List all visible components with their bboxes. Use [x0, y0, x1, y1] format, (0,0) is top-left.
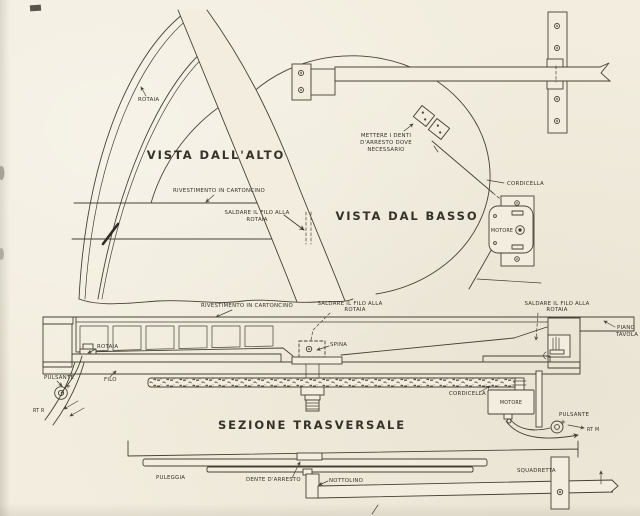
button-left-assembly [45, 356, 84, 425]
leader-mettere [404, 124, 413, 131]
label-dente-arresto: DENTE D'ARRESTO [246, 477, 301, 483]
label-mettere-line3: NECESSARIO [367, 147, 404, 153]
label-rt-m: RT M [587, 427, 599, 433]
label-nottolino: NOTTOLINO [329, 478, 363, 484]
label-rivestimento-top: RIVESTIMENTO IN CARTONCINO [173, 188, 265, 194]
pit-wall-left [43, 324, 72, 367]
step-strip-right [483, 356, 550, 362]
motor-bottom-view: MOTORE [489, 196, 534, 266]
rail-arc-outer [98, 48, 206, 299]
stop-tooth-tab [297, 453, 322, 460]
label-saldare-center-line2: ROTAIA [344, 307, 365, 313]
top-view-figure: ROTAIA RIVESTIMENTO IN CARTONCINO SALDAR… [72, 10, 353, 304]
technical-drawing-page: MOTORE METTERE I DENTI D'ARRESTO DOVE NE… [0, 0, 640, 516]
leader-rivestimento-top [206, 195, 214, 202]
paper-artifacts [0, 5, 41, 260]
title-top-view: VISTA DALL'ALTO [147, 148, 285, 162]
rail-arc-inner [102, 51, 210, 299]
label-saldare-top-line2: ROTAIA [246, 217, 267, 223]
label-rotaia-section: ROTAIA [97, 344, 118, 350]
label-mettere-line1: METTERE I DENTI [361, 133, 412, 139]
table-strip-left [43, 317, 73, 324]
pivot-arm [335, 63, 610, 81]
cross-section-figure: MOTORE RIVESTIMENTO IN CARTONCINO SALDAR [33, 301, 638, 438]
table-edge-line [128, 441, 578, 457]
motor-label: MOTORE [491, 228, 513, 234]
label-rt-r: RT R [33, 408, 45, 414]
title-bottom-view: VISTA DAL BASSO [335, 209, 478, 223]
label-spina: SPINA [330, 342, 347, 348]
stop-teeth [413, 106, 449, 152]
label-rotaia-top: ROTAIA [138, 97, 159, 103]
girder-bottom-chord-right [341, 327, 547, 355]
label-squadretta: SQUADRETTA [517, 468, 556, 474]
label-mettere-line2: D'ARRESTO DOVE [360, 140, 412, 146]
pawl-block [306, 474, 319, 498]
board-edge-line [477, 279, 541, 283]
leader-rotaia-top [141, 87, 146, 96]
rail-head [83, 344, 93, 349]
label-rivestimento-section: RIVESTIMENTO IN CARTONCINO [201, 303, 293, 309]
motor-section-label: MOTORE [500, 400, 522, 406]
label-pulsante-left: PULSANTE [44, 375, 74, 381]
leader-spina [317, 346, 329, 350]
label-cordicella-top: CORDICELLA [507, 181, 544, 187]
stray-mark [372, 505, 378, 514]
label-piano-line2: TAVOLA [615, 332, 638, 338]
leader-rivestimento-section [216, 310, 232, 317]
turntable-plan-drawing: MOTORE METTERE I DENTI D'ARRESTO DOVE NE… [0, 0, 640, 516]
label-saldare-top-line1: SALDARE IL FILO ALLA [224, 210, 289, 216]
leader-piano [604, 321, 615, 327]
label-puleggia: PULEGGIA [156, 475, 185, 481]
pulley-disc-section [148, 378, 518, 387]
wire-to-button-right [510, 419, 550, 430]
label-pulsante-right: PULSANTE [559, 412, 589, 418]
label-filo: FILO [104, 377, 117, 383]
title-section: SEZIONE TRASVERSALE [218, 418, 406, 432]
bracket-body [551, 457, 569, 509]
underside-figure: PULEGGIA DENTE D'ARRESTO NOTTOLINO SQUAD… [128, 441, 618, 514]
wire-left-b [53, 363, 84, 425]
push-button-right [551, 421, 563, 433]
leader-nottolino [319, 481, 328, 485]
hinge-bracket [292, 64, 335, 100]
pulley-disc-edge-2 [207, 467, 473, 472]
label-piano-line1: PIANO [617, 325, 635, 331]
ramp-strip-left [72, 354, 281, 362]
label-saldare-right-line2: ROTAIA [546, 307, 567, 313]
pivot-assembly [292, 341, 342, 411]
